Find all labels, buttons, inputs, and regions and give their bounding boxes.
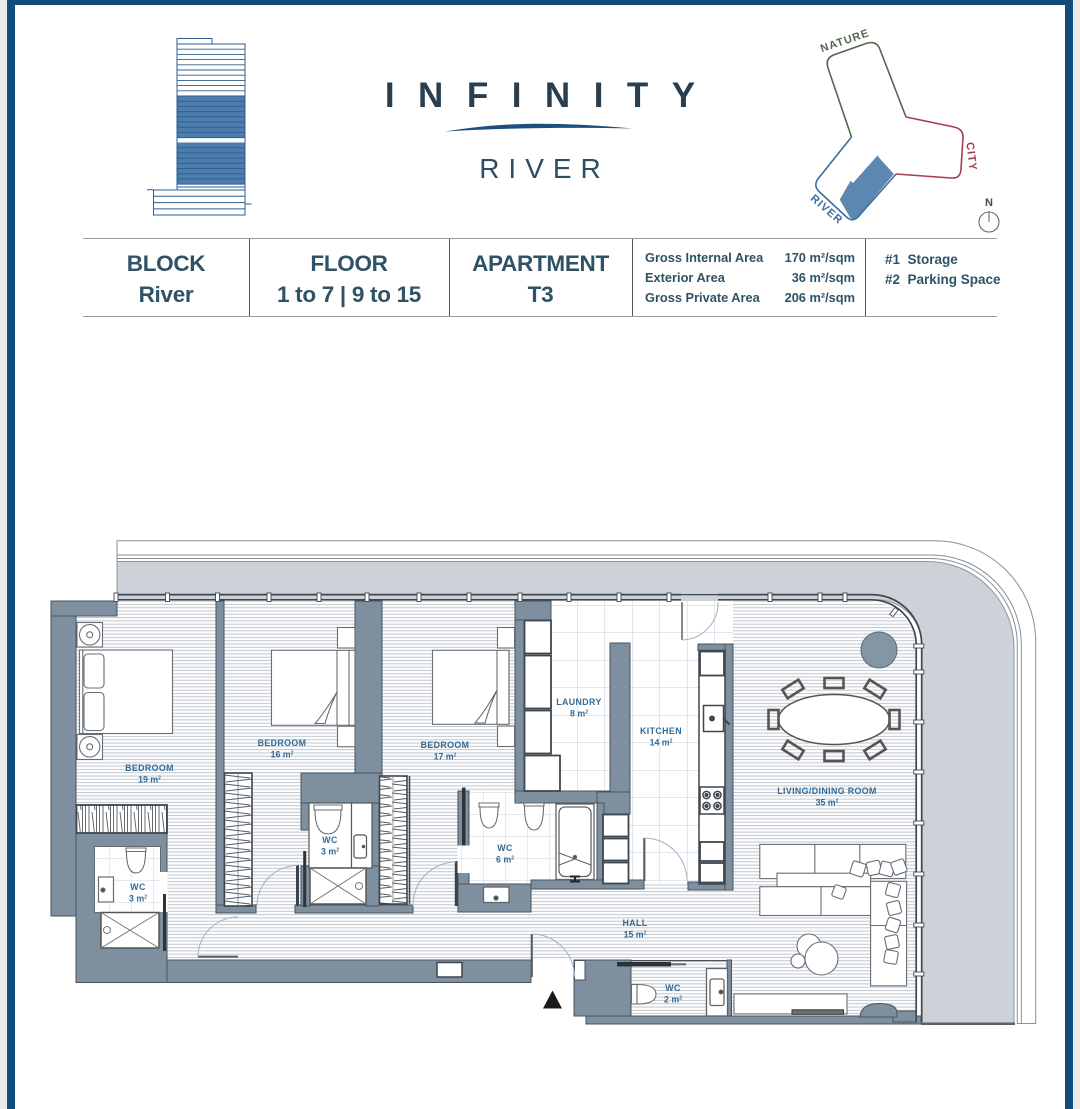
svg-text:15 m2: 15 m2 [624, 930, 647, 940]
svg-text:35 m2: 35 m2 [816, 798, 839, 808]
svg-text:BEDROOM: BEDROOM [125, 763, 174, 773]
svg-text:LIVING/DINING ROOM: LIVING/DINING ROOM [777, 786, 877, 796]
svg-text:WC: WC [130, 882, 146, 892]
svg-text:BEDROOM: BEDROOM [258, 738, 307, 748]
svg-text:LAUNDRY: LAUNDRY [556, 697, 601, 707]
svg-text:WC: WC [497, 843, 513, 853]
svg-text:KITCHEN: KITCHEN [640, 726, 682, 736]
svg-text:16 m2: 16 m2 [271, 750, 294, 760]
svg-text:17 m2: 17 m2 [434, 752, 457, 762]
svg-text:WC: WC [322, 835, 338, 845]
svg-text:HALL: HALL [622, 918, 647, 928]
svg-text:19 m2: 19 m2 [138, 775, 161, 785]
svg-text:14 m2: 14 m2 [650, 738, 673, 748]
svg-text:BEDROOM: BEDROOM [421, 740, 470, 750]
svg-text:WC: WC [665, 983, 681, 993]
